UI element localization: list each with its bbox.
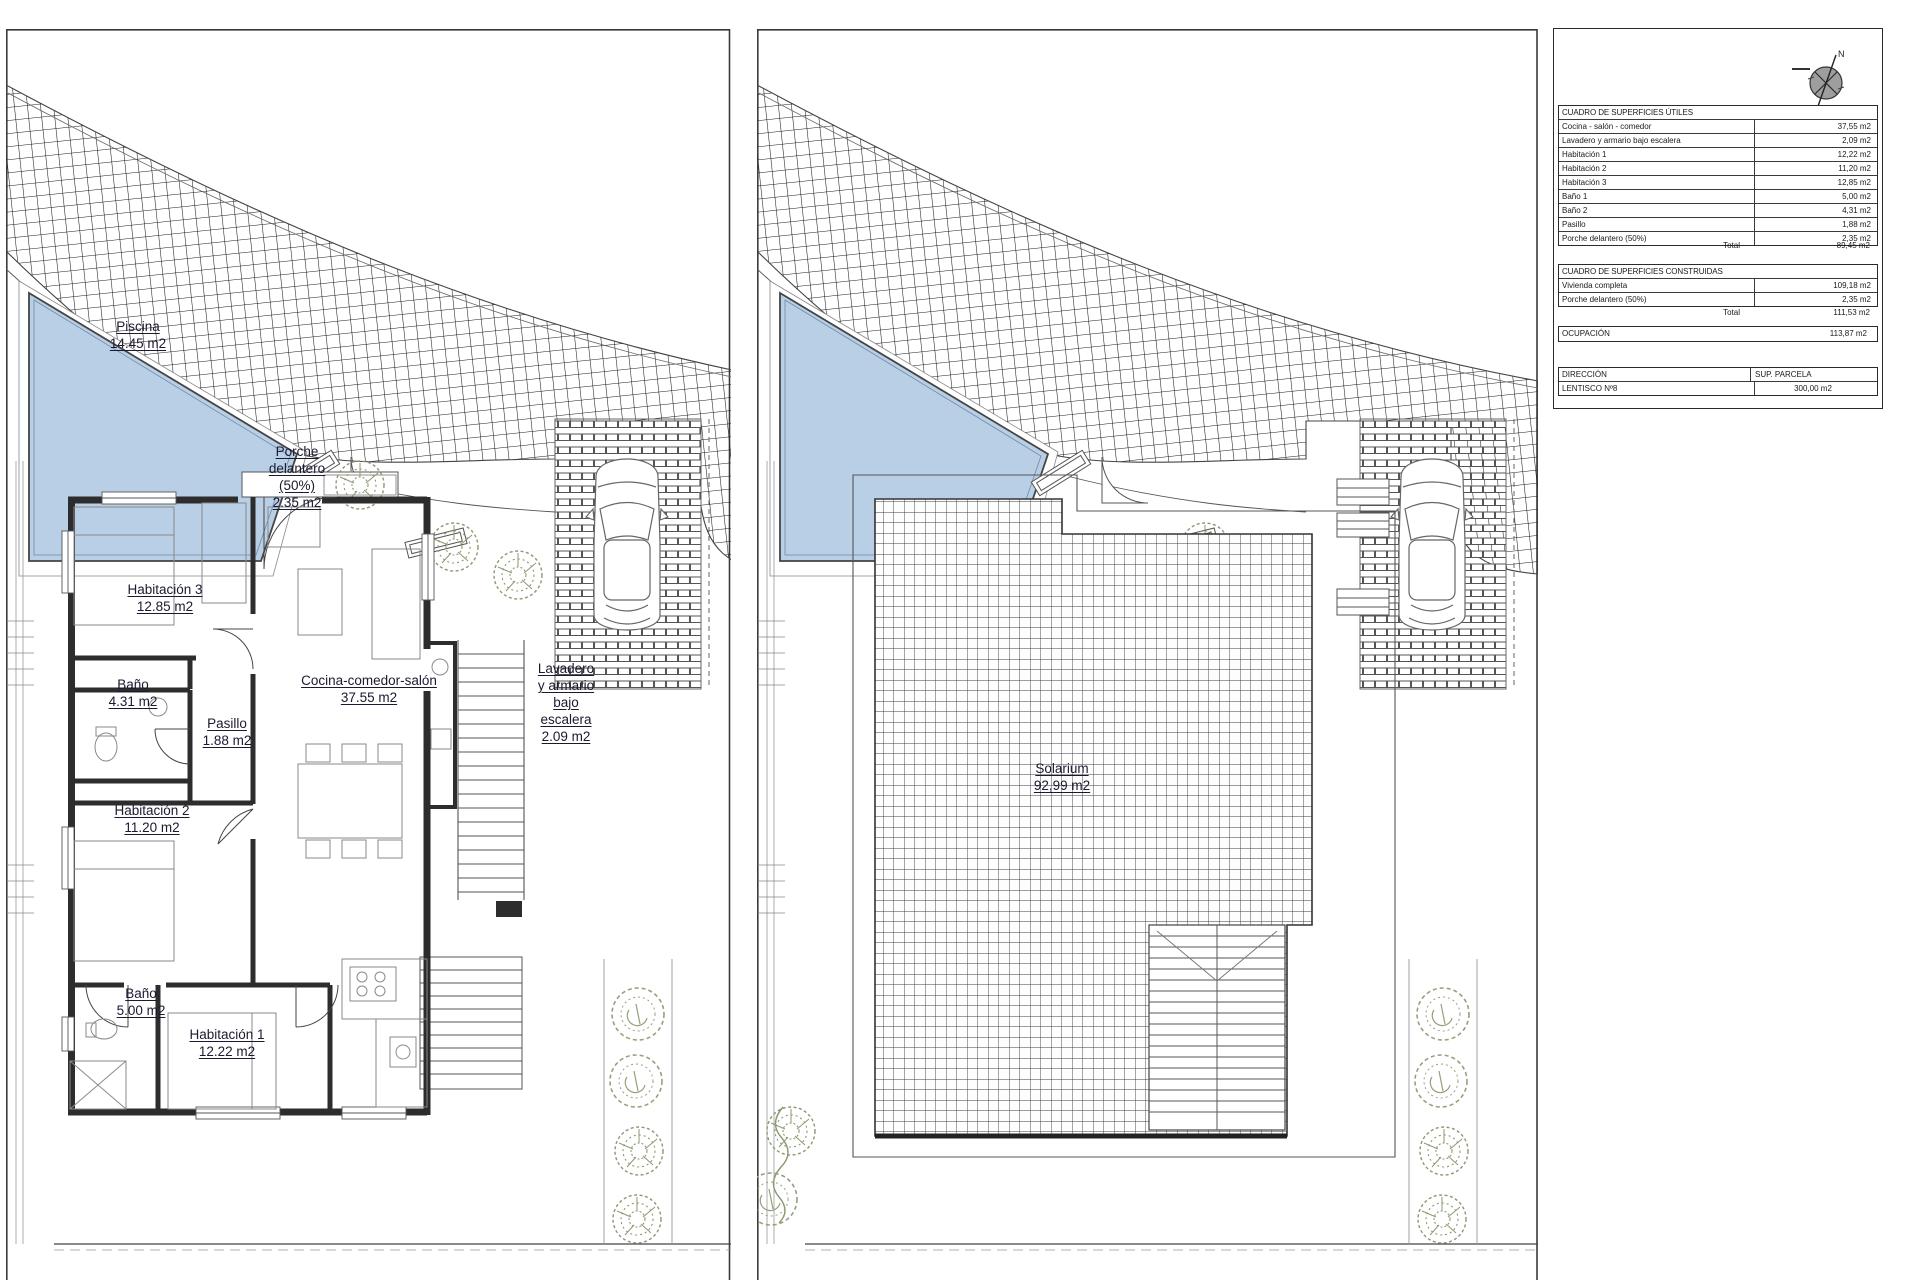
built-surfaces-table: CUADRO DE SUPERFICIES CONSTRUIDAS Vivien… <box>1558 264 1878 307</box>
garden-vine-icon <box>757 1107 815 1225</box>
label-lavadero: Lavadero y armario bajo escalera 2.09 m2 <box>538 660 594 745</box>
table-row: Baño 15,00 m2 <box>1559 189 1877 203</box>
compass-n-letter: N <box>1838 49 1845 59</box>
table-title: CUADRO DE SUPERFICIES CONSTRUIDAS <box>1559 265 1877 278</box>
label-solarium: Solarium 92,99 m2 <box>1034 760 1090 794</box>
label-cocina-comedor-salon: Cocina-comedor-salón 37.55 m2 <box>301 672 437 706</box>
table-title: CUADRO DE SUPERFICIES ÚTILES <box>1559 106 1877 119</box>
ocupacion-label: OCUPACIÓN <box>1559 327 1751 341</box>
table-row: Porche delantero (50%)2,35 m2 <box>1559 292 1877 306</box>
table-row: Vivienda completa109,18 m2 <box>1559 278 1877 292</box>
driveway-car-icon <box>555 419 709 1244</box>
driveway-car-icon <box>1360 419 1514 1244</box>
ocupacion-table: OCUPACIÓN 113,87 m2 <box>1558 326 1878 342</box>
label-porche: Porche delantero (50%) 2.35 m2 <box>269 443 325 511</box>
table-row: Habitación 211,20 m2 <box>1559 161 1877 175</box>
roof-solarium <box>757 475 1395 1225</box>
drawing-sheet: Piscina 14.45 m2 Porche delantero (50%) … <box>0 0 1920 1280</box>
table-row: Pasillo1,88 m2 <box>1559 217 1877 231</box>
label-piscina: Piscina 14.45 m2 <box>110 318 166 352</box>
label-pasillo: Pasillo 1.88 m2 <box>203 715 252 749</box>
direccion-table: DIRECCIÓN SUP. PARCELA LENTISCO Nº8 300,… <box>1558 367 1878 396</box>
table-row: Habitación 112,22 m2 <box>1559 147 1877 161</box>
table-row: LENTISCO Nº8 300,00 m2 <box>1559 381 1877 395</box>
built-total-row: Total 111,53 m2 <box>1558 306 1876 319</box>
table-row: Cocina - salón - comedor37,55 m2 <box>1559 119 1877 133</box>
label-habitacion-2: Habitación 2 11.20 m2 <box>114 802 189 836</box>
label-bano-1: Baño 5.00 m2 <box>117 985 166 1019</box>
table-row: DIRECCIÓN SUP. PARCELA <box>1559 368 1877 381</box>
roof-plan-drawing <box>757 29 1538 1280</box>
useful-surfaces-table: CUADRO DE SUPERFICIES ÚTILES Cocina - sa… <box>1558 105 1878 246</box>
label-bano-2: Baño 4.31 m2 <box>109 676 158 710</box>
ocupacion-value: 113,87 m2 <box>1751 327 1877 341</box>
useful-total-row: Total 89,45 m2 <box>1558 239 1876 252</box>
ground-floor-plan-drawing <box>6 29 731 1280</box>
title-block-panel: N CUADRO DE SUPERFICIES ÚTILES Cocina - … <box>1553 28 1883 409</box>
external-stair <box>458 640 524 900</box>
label-habitacion-1: Habitación 1 12.22 m2 <box>189 1026 264 1060</box>
table-row: Lavadero y armario bajo escalera2,09 m2 <box>1559 133 1877 147</box>
label-habitacion-3: Habitación 3 12.85 m2 <box>127 581 202 615</box>
roof-stair <box>1149 925 1285 1130</box>
table-row: Habitación 312,85 m2 <box>1559 175 1877 189</box>
table-row: Baño 24,31 m2 <box>1559 203 1877 217</box>
door-swings <box>86 497 338 1027</box>
